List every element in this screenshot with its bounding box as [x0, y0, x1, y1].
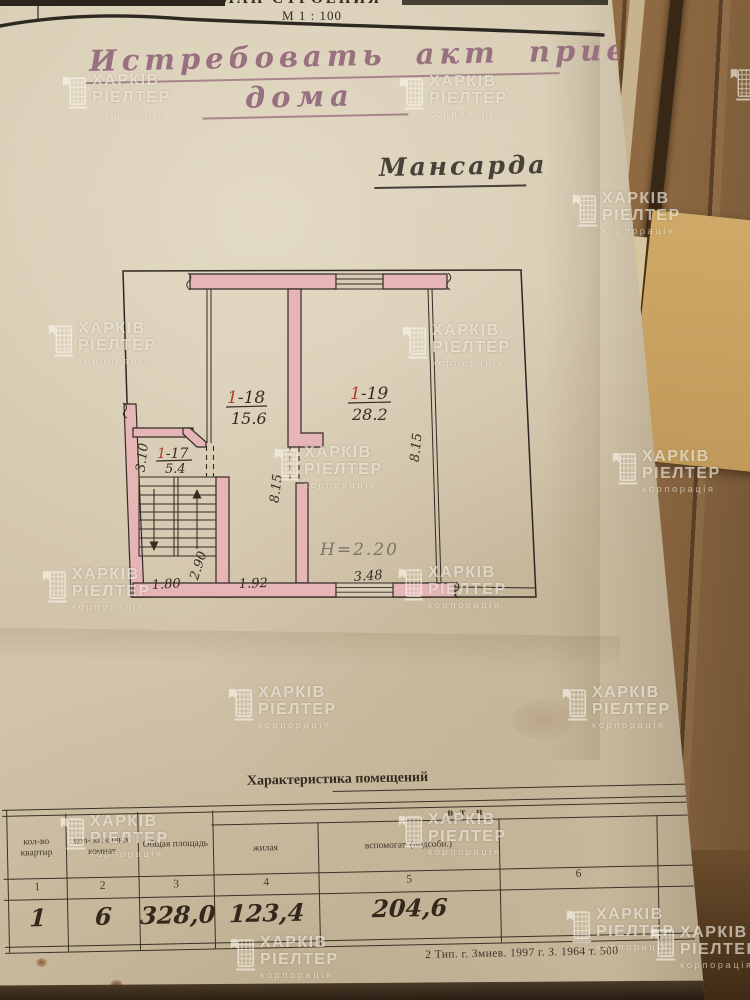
table-value-cell: 6 [68, 901, 139, 932]
floor-label: Мансарда [379, 150, 548, 182]
table-header-cell [499, 818, 656, 867]
table-value-cell: 1 [9, 903, 67, 933]
thin-partitions [207, 289, 441, 583]
height-note: Н=2.20 [319, 540, 399, 560]
dim-stair-depth: 2.90 [187, 550, 211, 583]
room-area-1-19: 28.2 [351, 405, 388, 424]
document-photo: ПЛАН СТРОЕНИЯ М 1 : 100 [0, 0, 750, 1000]
plan-inner-edge [455, 587, 536, 588]
dim-depth-right: 8.15 [408, 432, 426, 462]
table-header-cell: жилая [214, 825, 318, 873]
room-area-1-18: 15.6 [231, 409, 267, 428]
print-imprint: 2 Тип. г. Змиев. 1997 г. З. 1964 т. 500 [425, 943, 705, 961]
table-header-cell: вспомогат. (подсобн.) [318, 822, 498, 872]
stair-arrowhead-up [193, 489, 202, 499]
table-value-cell: 328,0 [140, 900, 214, 931]
table-colnum-cell: 5 [320, 872, 499, 888]
dim-depth-left: 8.15 [267, 473, 285, 504]
stair-arrowhead-down [150, 542, 159, 552]
dim-window-width: 3.48 [353, 568, 383, 585]
table-header-cell: Общая площадь [138, 816, 212, 876]
dim-corridor-width: 1.92 [239, 576, 268, 592]
dim-stair-width: 1.80 [151, 576, 181, 592]
table-colnum-cell: 6 [500, 866, 656, 881]
table-colnum-cell: 4 [215, 875, 318, 889]
table-header-cell: кол-во квартир [7, 819, 65, 878]
including-label: в т. ч. [423, 805, 513, 819]
dim-left-height: 3.10 [134, 442, 152, 473]
table-colnum-cell: 2 [68, 879, 138, 892]
table-value-cell: 123,4 [215, 897, 319, 928]
room-label-1-19: 1-19 [350, 384, 388, 404]
room-area-1-17: 5.4 [165, 462, 186, 477]
top-rule [0, 16, 603, 35]
table-colnum-cell: 3 [140, 878, 213, 892]
room-label-1-18: 1-18 [227, 388, 265, 408]
table-header-cell: кол-во жилых комнат [66, 817, 137, 876]
room-characteristics-table: Характеристика помещений в т. ч. кол-во … [0, 757, 714, 987]
table-colnum-cell: 1 [9, 881, 66, 894]
handwritten-line2: дома [245, 78, 356, 114]
table-value-cell: 204,6 [320, 892, 500, 925]
room-label-1-17: 1-17 [157, 446, 189, 462]
table-value-cell [501, 890, 657, 893]
table-border [656, 815, 660, 939]
staircase [139, 477, 216, 556]
